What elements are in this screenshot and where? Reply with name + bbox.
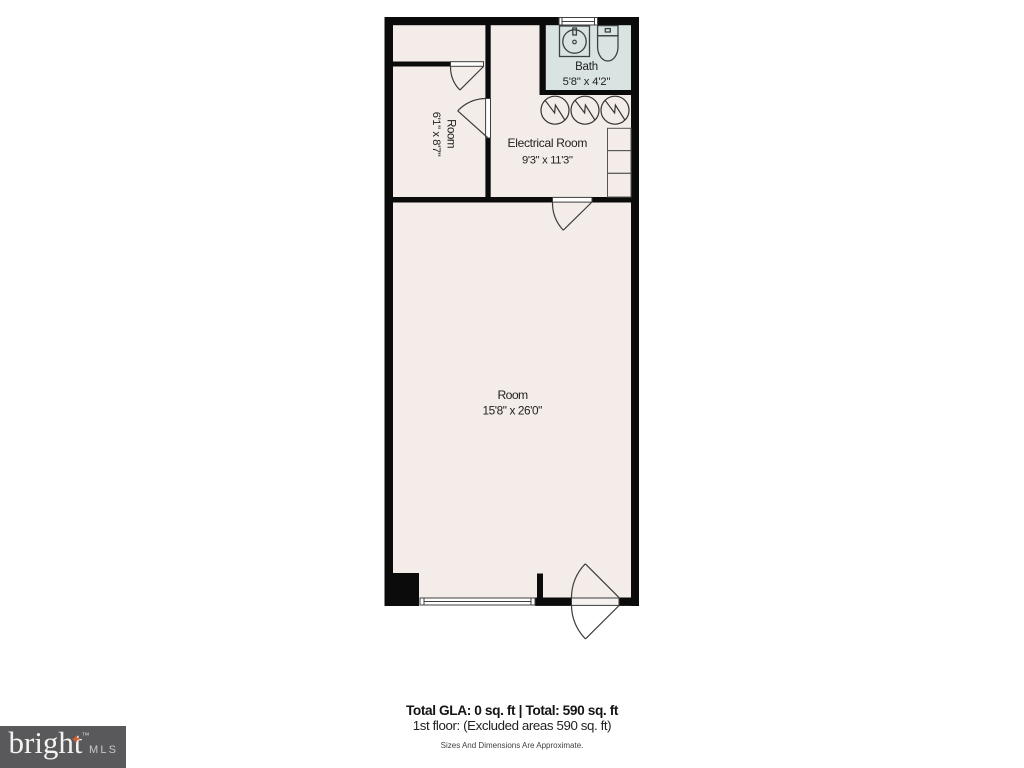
- svg-text:Bath: Bath: [575, 61, 598, 73]
- svg-text:Room: Room: [497, 388, 528, 402]
- svg-text:Electrical Room: Electrical Room: [508, 136, 588, 150]
- svg-text:6'1" x 8'7": 6'1" x 8'7": [430, 112, 442, 157]
- svg-text:15'8" x 26'0": 15'8" x 26'0": [482, 404, 542, 418]
- svg-text:5'8" x 4'2": 5'8" x 4'2": [563, 76, 611, 88]
- svg-text:9'3" x 11'3": 9'3" x 11'3": [522, 155, 573, 167]
- svg-text:Room: Room: [445, 119, 458, 148]
